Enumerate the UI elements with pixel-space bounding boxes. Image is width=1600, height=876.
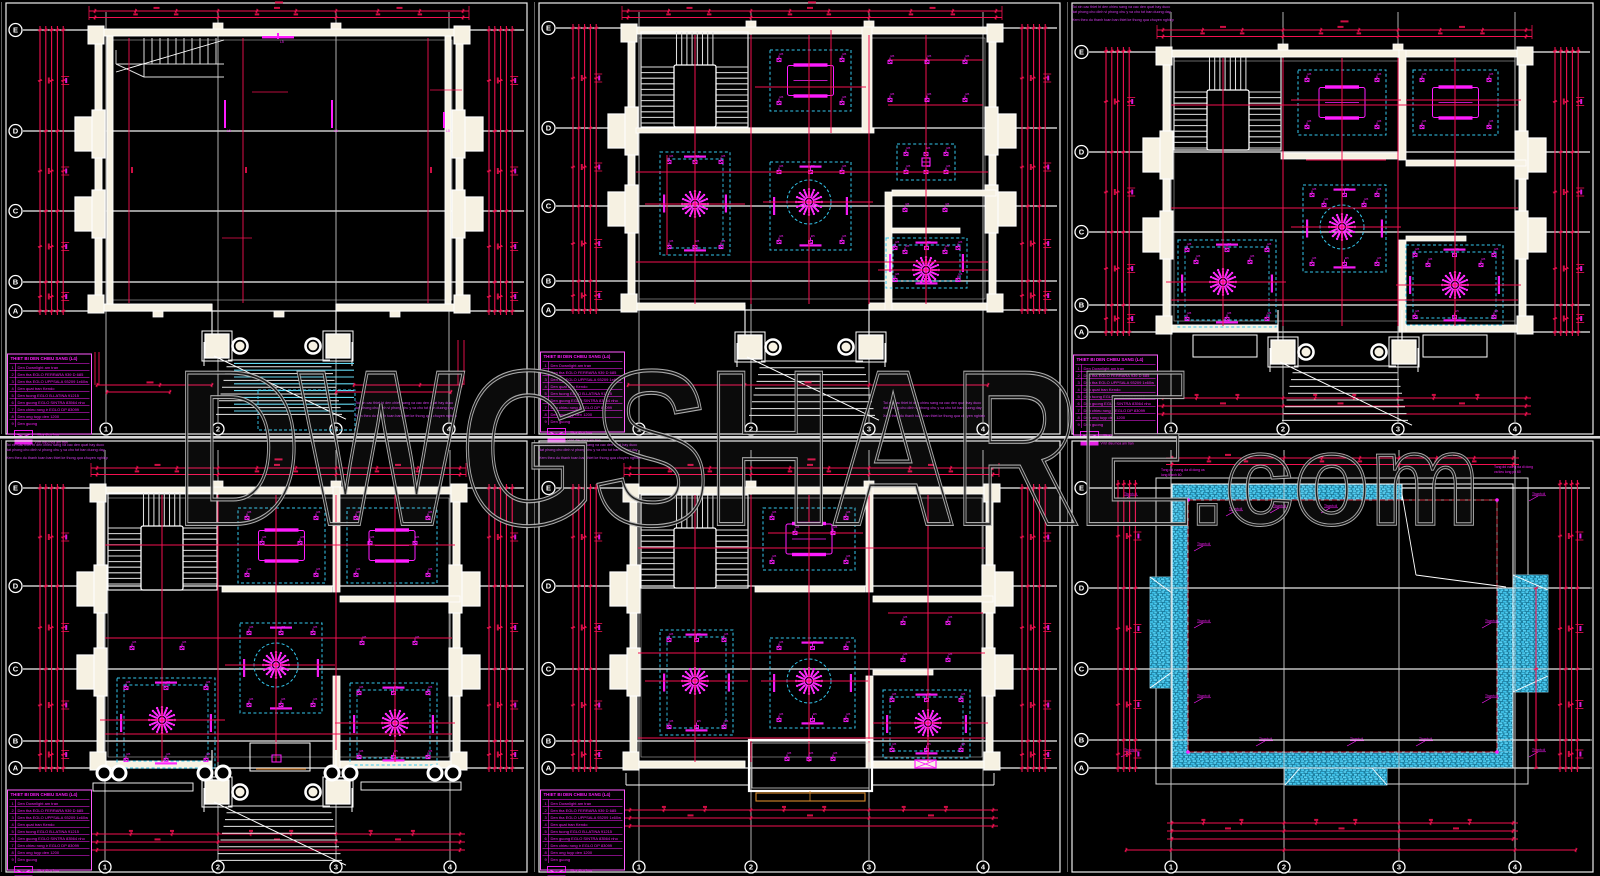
svg-text:Đ5: Đ5 [360,685,364,689]
svg-text:Đ5: Đ5 [696,154,700,158]
svg-text:C: C [13,665,19,674]
svg-text:Đ5: Đ5 [670,632,674,636]
svg-text:May dieu hoa: May dieu hoa [571,869,593,873]
svg-text:Đ5: Đ5 [722,239,726,243]
svg-text:Đ5: Đ5 [1308,119,1312,123]
svg-text:Đ5: Đ5 [1423,119,1427,123]
svg-text:Đ5: Đ5 [947,146,951,150]
svg-text:va tieu long po 60: va tieu long po 60 [1494,470,1521,474]
svg-text:Den Downlight am tran: Den Downlight am tran [18,801,59,806]
svg-text:Den tha EGLO FERRARA 939 D 685: Den tha EGLO FERRARA 939 D 685 [18,808,85,813]
svg-text:Đ5: Đ5 [282,697,286,701]
svg-text:Thanh di: Thanh di [1485,619,1498,623]
svg-text:Đ5: Đ5 [811,164,815,168]
svg-text:E: E [13,26,18,35]
svg-text:Đ5: Đ5 [811,234,815,238]
svg-text:Đ5: Đ5 [780,164,784,168]
svg-text:Đ5: Đ5 [843,95,847,99]
svg-text:Den ong tuyp den 1200: Den ong tuyp den 1200 [18,414,60,419]
svg-text:Den guong: Den guong [18,421,38,426]
svg-text:Đ5: Đ5 [907,146,911,150]
svg-text:Đ5: Đ5 [1268,311,1272,315]
svg-text:Đ5: Đ5 [167,680,171,684]
svg-text:Đ5: Đ5 [183,640,187,644]
svg-text:Den quat tran Kendo: Den quat tran Kendo [18,822,56,827]
svg-text:Đ5: Đ5 [697,719,701,723]
svg-text:Đ5: Đ5 [314,697,318,701]
svg-text:D: D [13,582,19,591]
svg-text:Đ5: Đ5 [847,640,851,644]
svg-text:Đ5: Đ5 [670,154,674,158]
svg-text:Đ5: Đ5 [429,685,433,689]
svg-text:B: B [13,737,19,746]
svg-text:Đ5: Đ5 [1251,254,1255,258]
svg-text:C: C [13,207,19,216]
svg-text:Đ5: Đ5 [725,632,729,636]
svg-text:Thanh di: Thanh di [1485,694,1498,698]
svg-text:Đ5: Đ5 [843,234,847,238]
svg-text:Đ5: Đ5 [843,164,847,168]
svg-text:B: B [1079,736,1085,745]
svg-text:dat phong cho dinh vi phong ch: dat phong cho dinh vi phong chu y va cho… [6,448,105,452]
svg-text:Đ5: Đ5 [928,92,932,96]
svg-text:Đ5: Đ5 [722,154,726,158]
svg-text:B: B [13,278,19,287]
svg-text:A: A [546,306,552,315]
svg-text:Đ5: Đ5 [947,164,951,168]
svg-text:Đ5: Đ5 [843,52,847,56]
svg-text:Đ5: Đ5 [906,244,910,248]
svg-text:Den tha EGLO FERRARA 939 D 685: Den tha EGLO FERRARA 939 D 685 [551,808,618,813]
svg-text:Đ5: Đ5 [167,752,171,756]
svg-text:Đ5: Đ5 [1345,187,1349,191]
svg-text:Đ5: Đ5 [847,712,851,716]
svg-text:D: D [1079,148,1085,157]
svg-text:.com: .com [1190,406,1480,552]
svg-text:Đ5: Đ5 [1423,72,1427,76]
svg-text:B: B [1079,301,1085,310]
svg-text:Đ5: Đ5 [1482,257,1486,261]
svg-text:Đ5: Đ5 [1378,187,1382,191]
svg-text:May dieu hoa: May dieu hoa [38,433,60,437]
svg-text:Đ5: Đ5 [780,640,784,644]
svg-text:Đ5: Đ5 [1268,242,1272,246]
svg-text:Đ5: Đ5 [780,712,784,716]
svg-text:Đ5: Đ5 [834,751,838,755]
svg-text:Đ5: Đ5 [1490,72,1494,76]
svg-text:Den chieu rong ir EGLO DP 8309: Den chieu rong ir EGLO DP 83099 [18,407,80,412]
svg-text:Đ5: Đ5 [1490,119,1494,123]
svg-text:Đ5: Đ5 [780,52,784,56]
svg-text:Den Downlight am tran: Den Downlight am tran [551,801,592,806]
svg-text:Đ5: Đ5 [1188,242,1192,246]
svg-text:Den guong: Den guong [551,857,571,862]
svg-text:Thanh di: Thanh di [1197,694,1210,698]
svg-text:C: C [546,665,552,674]
svg-text:Đ5: Đ5 [314,625,318,629]
svg-text:C: C [1079,228,1085,237]
svg-text:D: D [546,124,552,133]
svg-text:C: C [546,202,552,211]
svg-text:A: A [13,307,19,316]
svg-text:1: 1 [637,863,641,872]
svg-text:Đ5: Đ5 [893,692,897,696]
svg-text:Den tha EGLO UPPSALA 93209 1x6: Den tha EGLO UPPSALA 93209 1x60w [18,379,89,384]
svg-text:Đ5: Đ5 [896,272,900,276]
svg-text:dat phong cho dinh vi phong ch: dat phong cho dinh vi phong chu y va cho… [1072,10,1171,14]
svg-text:L5: L5 [446,129,450,133]
svg-text:Den tha EGLO FERRARA 939 D 685: Den tha EGLO FERRARA 939 D 685 [18,372,85,377]
svg-text:3: 3 [1397,863,1401,872]
svg-text:2: 2 [749,863,753,872]
svg-text:Đ5: Đ5 [1313,187,1317,191]
svg-text:Đ5: Đ5 [207,680,211,684]
svg-text:THIET BI DEN CHIEU SANG (L4): THIET BI DEN CHIEU SANG (L4) [544,792,611,797]
svg-text:E: E [1079,48,1084,57]
svg-text:Đ5: Đ5 [696,239,700,243]
svg-text:3: 3 [334,863,338,872]
svg-text:Đ5: Đ5 [1188,311,1192,315]
svg-text:Den tha EGLO UPPSALA 93209 1x6: Den tha EGLO UPPSALA 93209 1x60w [18,815,89,820]
svg-text:Đ5: Đ5 [363,635,367,639]
svg-text:1: 1 [104,425,108,434]
svg-text:Đ5: Đ5 [928,54,932,58]
svg-text:Xem theo du thanh toan ban thi: Xem theo du thanh toan ban thiet ke thon… [6,456,108,460]
svg-text:Đ5: Đ5 [416,635,420,639]
svg-text:Đ5: Đ5 [904,652,908,656]
svg-text:Đ5: Đ5 [670,239,674,243]
svg-text:Đ5: Đ5 [133,640,137,644]
svg-text:Toi xin cac thiet bi den chieu: Toi xin cac thiet bi den chieu sang va c… [6,443,104,447]
svg-text:3: 3 [867,863,871,872]
svg-text:Den guong EGLO SINTRA 83564 nh: Den guong EGLO SINTRA 83564 nho [551,836,619,841]
svg-text:Đ5: Đ5 [127,680,131,684]
svg-text:2: 2 [1282,863,1286,872]
svg-text:Den tuong EGLO B-LATINA 91215: Den tuong EGLO B-LATINA 91215 [18,829,80,834]
svg-text:Đ5: Đ5 [788,751,792,755]
svg-text:Đ5: Đ5 [127,752,131,756]
svg-text:Den ong tuyp den 1200: Den ong tuyp den 1200 [18,850,60,855]
svg-text:Đ5: Đ5 [927,164,931,168]
svg-text:Đ5: Đ5 [1365,197,1369,201]
svg-text:Đ5: Đ5 [813,712,817,716]
svg-text:Đ5: Đ5 [907,164,911,168]
svg-text:Đ5: Đ5 [896,240,900,244]
svg-text:Đ5: Đ5 [966,92,970,96]
svg-text:Den chieu rong ir EGLO DP 8309: Den chieu rong ir EGLO DP 83099 [18,843,80,848]
svg-text:Đ5: Đ5 [780,234,784,238]
svg-text:Đ5: Đ5 [1228,311,1232,315]
svg-text:Den guong EGLO SINTRA 83564 nh: Den guong EGLO SINTRA 83564 nho [18,836,86,841]
svg-text:Đ5: Đ5 [1345,256,1349,260]
svg-text:Den guong: Den guong [18,857,38,862]
svg-text:THIET BI DEN CHIEU SANG (L4): THIET BI DEN CHIEU SANG (L4) [11,356,78,361]
svg-text:L5: L5 [334,129,338,133]
svg-text:Đ5: Đ5 [360,749,364,753]
svg-text:1: 1 [103,863,107,872]
svg-text:E: E [13,484,18,493]
svg-text:Đ5: Đ5 [725,719,729,723]
svg-text:THIET BI DEN CHIEU SANG (L4): THIET BI DEN CHIEU SANG (L4) [11,792,78,797]
svg-text:A: A [1079,764,1085,773]
svg-text:Đ5: Đ5 [1197,254,1201,258]
svg-text:Đ5: Đ5 [959,240,963,244]
svg-text:Đ5: Đ5 [1313,256,1317,260]
svg-text:Xem theo du thanh toan ban thi: Xem theo du thanh toan ban thiet ke thon… [1072,18,1174,22]
svg-text:DWGSHARE: DWGSHARE [175,325,1190,571]
svg-text:Toi xin cac thiet bi den chieu: Toi xin cac thiet bi den chieu sang va c… [1072,5,1170,9]
svg-text:Đ5: Đ5 [429,749,433,753]
svg-text:Đ5: Đ5 [946,244,950,248]
svg-text:L5: L5 [227,129,231,133]
svg-text:E: E [546,24,551,33]
svg-text:Đ5: Đ5 [891,54,895,58]
svg-text:Đ5: Đ5 [949,615,953,619]
svg-text:Đ5: Đ5 [1228,242,1232,246]
svg-text:Đ5: Đ5 [904,615,908,619]
svg-text:Den chieu rong ir EGLO DP 8309: Den chieu rong ir EGLO DP 83099 [551,843,613,848]
svg-text:Đ5: Đ5 [1429,257,1433,261]
svg-text:Đ5: Đ5 [250,697,254,701]
svg-text:Den quat tran Kendo: Den quat tran Kendo [551,822,589,827]
svg-text:Đ5: Đ5 [813,640,817,644]
svg-text:D: D [1079,584,1085,593]
svg-text:Đ5: Đ5 [282,625,286,629]
svg-text:Den tha EGLO UPPSALA 93209 1x6: Den tha EGLO UPPSALA 93209 1x60w [551,815,622,820]
svg-text:Đ5: Đ5 [1378,72,1382,76]
svg-text:Đ5: Đ5 [891,92,895,96]
svg-text:Đ5: Đ5 [207,752,211,756]
svg-text:Thanh di: Thanh di [1532,492,1545,496]
svg-text:Den ong tuyp den 1200: Den ong tuyp den 1200 [551,850,593,855]
svg-text:Đ5: Đ5 [949,652,953,656]
svg-text:D: D [13,127,19,136]
svg-text:Đ5: Đ5 [780,95,784,99]
svg-text:Thanh di: Thanh di [1197,619,1210,623]
svg-text:L5: L5 [280,40,284,44]
svg-text:B: B [546,277,552,286]
svg-text:Den tuong EGLO B-LATINA 91215: Den tuong EGLO B-LATINA 91215 [18,393,80,398]
svg-text:Đ5: Đ5 [1378,119,1382,123]
svg-text:1: 1 [1169,863,1173,872]
svg-text:A: A [13,764,19,773]
svg-text:Đ5: Đ5 [893,742,897,746]
svg-text:Đ5: Đ5 [810,751,814,755]
svg-text:Đ5: Đ5 [946,202,950,206]
svg-text:Den guong EGLO SINTRA 83564 nh: Den guong EGLO SINTRA 83564 nho [18,400,86,405]
svg-text:Đ5: Đ5 [250,625,254,629]
svg-text:Đ5: Đ5 [927,146,931,150]
svg-text:B: B [546,737,552,746]
svg-text:Đ5: Đ5 [1495,309,1499,313]
svg-text:2: 2 [216,863,220,872]
svg-text:Đ5: Đ5 [1416,247,1420,251]
svg-text:Đ5: Đ5 [962,692,966,696]
svg-text:Đ5: Đ5 [1455,247,1459,251]
svg-text:Đ5: Đ5 [962,742,966,746]
svg-text:Đ5: Đ5 [1455,309,1459,313]
svg-text:Đ5: Đ5 [1308,72,1312,76]
svg-text:Den tuong EGLO B-LATINA 91215: Den tuong EGLO B-LATINA 91215 [551,829,613,834]
svg-text:Đ5: Đ5 [1378,256,1382,260]
svg-text:Den quat tran Kendo: Den quat tran Kendo [18,386,56,391]
svg-text:Tong dd vuong da di dong: Tong dd vuong da di dong [1494,465,1533,469]
svg-text:May dieu hoa: May dieu hoa [38,869,60,873]
svg-text:Đ5: Đ5 [697,632,701,636]
svg-text:C: C [1079,665,1085,674]
svg-text:Đ5: Đ5 [959,272,963,276]
svg-text:Đ5: Đ5 [906,202,910,206]
svg-text:Đ5: Đ5 [1325,197,1329,201]
svg-text:Đ5: Đ5 [1495,247,1499,251]
svg-text:Đ5: Đ5 [966,54,970,58]
svg-text:Den Downlight am tran: Den Downlight am tran [18,365,59,370]
svg-text:Đ5: Đ5 [670,719,674,723]
svg-text:A: A [546,764,552,773]
svg-text:Đ5: Đ5 [1416,309,1420,313]
svg-text:Thanh di: Thanh di [1532,748,1545,752]
svg-text:Đ5: Đ5 [927,240,931,244]
svg-text:D: D [546,582,552,591]
